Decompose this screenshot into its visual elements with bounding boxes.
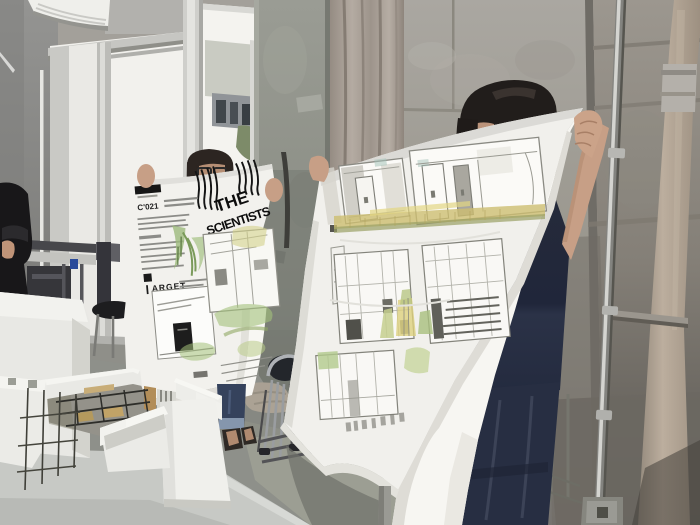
svg-text:C'021: C'021 [137, 201, 159, 212]
